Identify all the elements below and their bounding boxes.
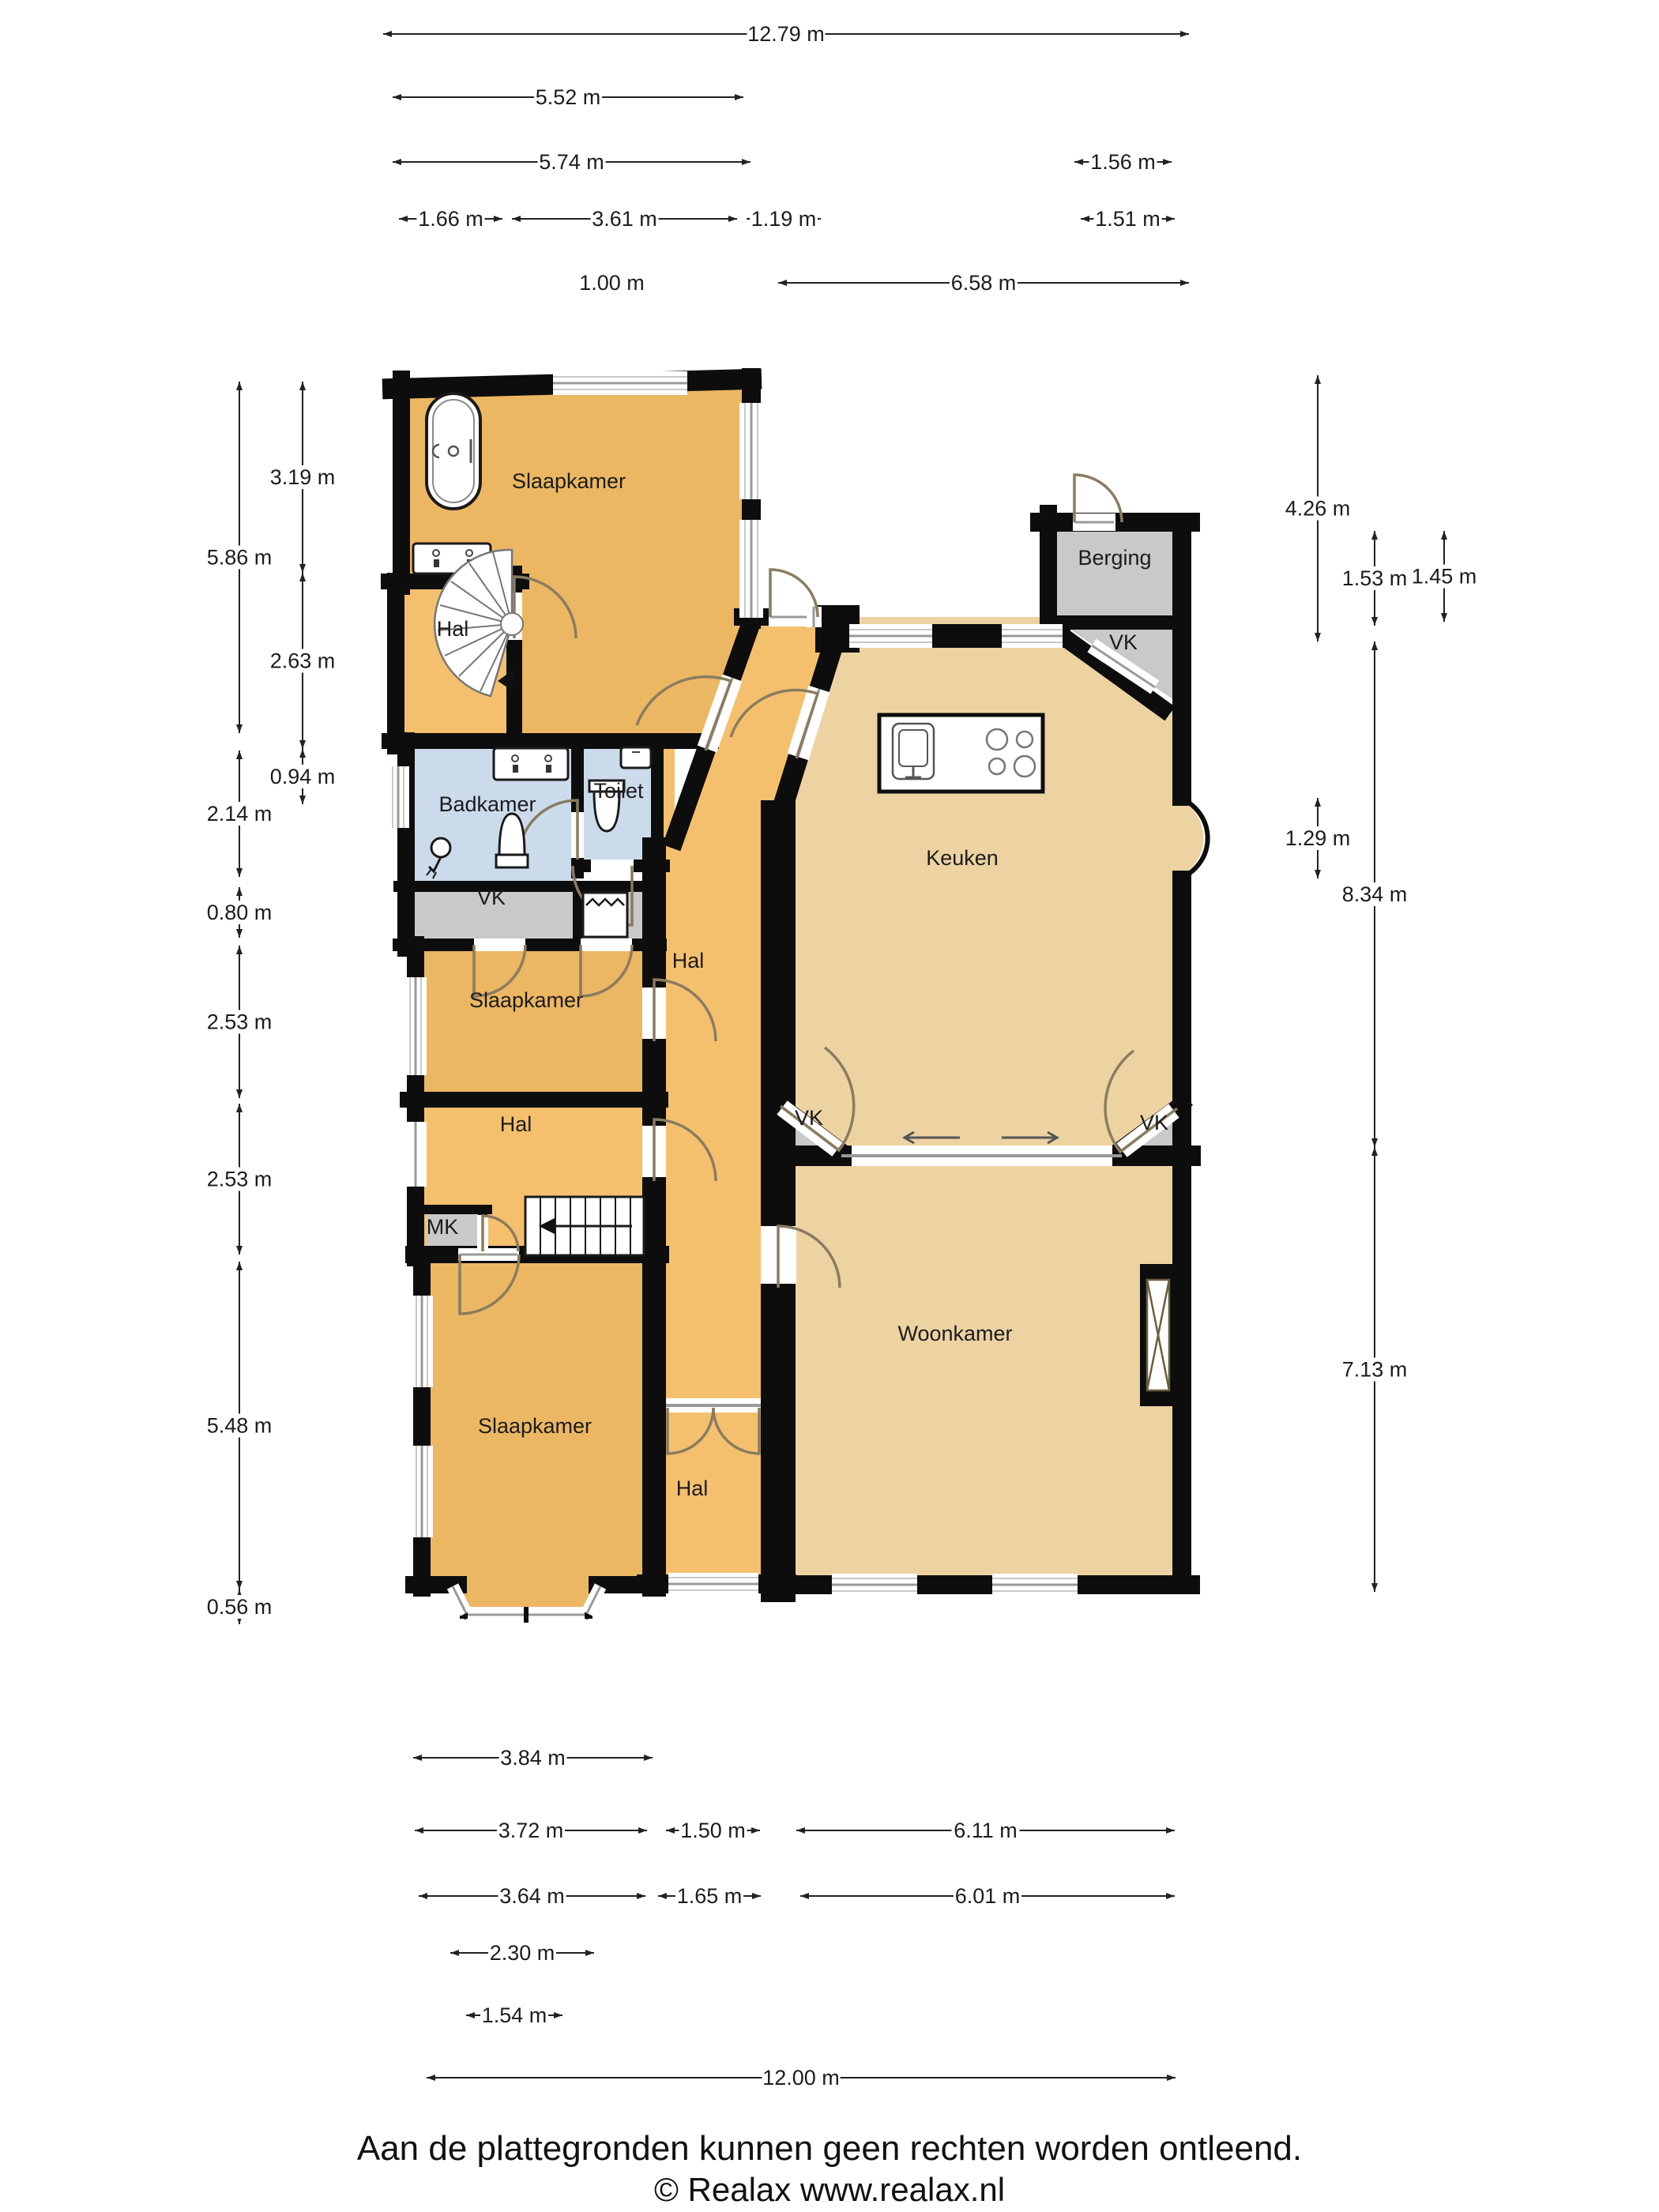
label-keuken: Keuken	[926, 846, 999, 870]
label-badkamer: Badkamer	[438, 792, 536, 816]
label-berging: Berging	[1078, 546, 1151, 570]
vanity-badkamer	[494, 748, 568, 780]
dimension-label: 8.34 m	[1342, 882, 1408, 906]
label-woonkamer: Woonkamer	[897, 1322, 1012, 1345]
window-badkamer-left	[387, 766, 409, 828]
window-slaapkamer-mid-left	[404, 977, 427, 1075]
label-slaapkamer-top: Slaapkamer	[512, 469, 626, 493]
window-slaapkamer-top-right-1	[739, 403, 763, 499]
room-slaapkamer-mid	[416, 945, 654, 1100]
window-keuken-top-2	[1002, 624, 1063, 648]
dimension-label: 2.63 m	[270, 649, 336, 673]
dimension-label: 2.53 m	[207, 1168, 273, 1191]
dimension-label: 7.13 m	[1342, 1358, 1408, 1382]
label-vk-badkamer: VK	[477, 886, 506, 909]
dimension-label: 1.66 m	[418, 207, 483, 231]
dimension-label: 1.56 m	[1090, 150, 1156, 174]
window-slaapkamer-bottom-left-2	[411, 1446, 433, 1537]
label-vk-rechts: VK	[1140, 1111, 1168, 1134]
dimension-label: 3.19 m	[270, 465, 336, 489]
window-woonkamer-bottom-2	[992, 1574, 1078, 1596]
staircase	[525, 1197, 644, 1255]
dimension-label: 0.56 m	[207, 1595, 273, 1619]
window-slaapkamer-bottom-left-1	[411, 1296, 433, 1387]
dimension-label: 5.52 m	[536, 85, 601, 109]
dimension-label: 12.00 m	[762, 2066, 840, 2090]
window-keuken-top-1	[849, 624, 932, 648]
window-top-wall	[553, 371, 687, 395]
kitchen-island	[879, 715, 1043, 792]
label-hal-corridor-1: Hal	[672, 949, 705, 972]
label-hal-corridor-2: Hal	[676, 1477, 709, 1500]
window-hal-mid-left	[404, 1122, 427, 1187]
label-hal-mid: Hal	[500, 1112, 532, 1136]
label-slaapkamer-bottom: Slaapkamer	[478, 1414, 592, 1438]
dimension-label: 2.30 m	[490, 1941, 555, 1965]
label-slaapkamer-mid: Slaapkamer	[469, 988, 583, 1012]
dimension-label: 3.84 m	[500, 1746, 566, 1770]
dimension-label: 1.51 m	[1095, 207, 1161, 231]
dimension-label: 5.48 m	[207, 1414, 273, 1438]
dimension-label: 6.01 m	[955, 1884, 1021, 1908]
dimension-label: 1.45 m	[1412, 565, 1477, 589]
footer-copyright: © Realax www.realax.nl	[654, 2171, 1005, 2208]
dimension-label: 4.26 m	[1285, 497, 1351, 521]
dimension-label: 2.53 m	[207, 1010, 273, 1034]
dimension-label: 5.86 m	[207, 546, 273, 570]
dimension-label: 6.11 m	[954, 1819, 1018, 1842]
dimension-label: 3.61 m	[592, 207, 657, 231]
label-vk-links: VK	[795, 1106, 823, 1130]
dimension-label: 1.65 m	[677, 1884, 743, 1908]
footer-disclaimer: Aan de plattegronden kunnen geen rechten…	[357, 2129, 1302, 2168]
bathtub	[427, 393, 480, 509]
dimension-label: 3.64 m	[499, 1884, 565, 1908]
dimension-label: 1.53 m	[1342, 566, 1408, 590]
dimension-label: 5.74 m	[539, 150, 604, 174]
dimension-label: 3.72 m	[498, 1819, 564, 1842]
dimension-label: 0.80 m	[207, 901, 273, 924]
dimension-label: 6.58 m	[951, 271, 1017, 295]
window-woonkamer-bottom-1	[832, 1574, 917, 1596]
dimension-label: 2.14 m	[207, 802, 273, 826]
dimension-label: 1.50 m	[680, 1819, 746, 1842]
label-vk-berging: VK	[1109, 630, 1138, 654]
dimension-label: 1.54 m	[482, 2003, 547, 2027]
label-hal-top: Hal	[437, 617, 469, 641]
label-toilet: Toilet	[593, 779, 644, 803]
room-keuken	[775, 617, 1182, 1156]
laundry-basket	[583, 893, 627, 937]
dimension-label: 1.29 m	[1285, 826, 1351, 850]
dimension-label: 1.19 m	[751, 207, 817, 231]
floor-plan: SlaapkamerHalBadkamerToiletVKSlaapkamerH…	[0, 0, 1659, 2212]
window-slaapkamer-top-right-2	[739, 520, 763, 618]
label-mk: MK	[427, 1215, 459, 1239]
dimension-label: 1.00 m	[579, 271, 645, 295]
dimension-label: 0.94 m	[270, 765, 336, 788]
window-corridor-bottom	[668, 1573, 758, 1595]
room-woonkamer	[778, 1156, 1182, 1585]
dimension-label: 12.79 m	[747, 22, 825, 46]
fireplace	[1140, 1264, 1191, 1406]
